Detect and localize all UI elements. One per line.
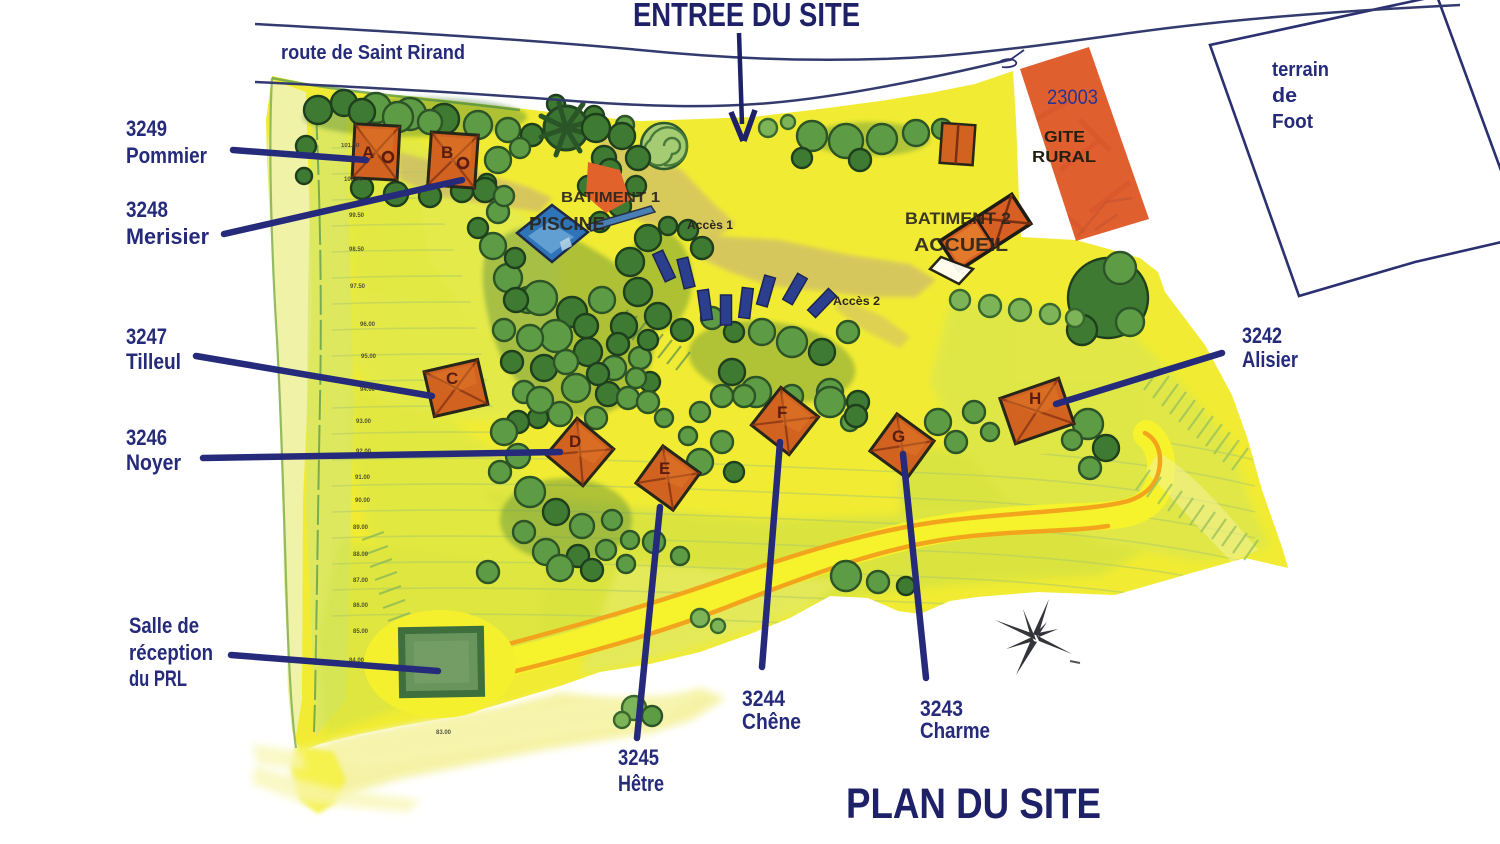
svg-text:3246: 3246	[126, 425, 167, 450]
svg-text:PLAN DU SITE: PLAN DU SITE	[846, 780, 1101, 828]
svg-text:ACCUEIL: ACCUEIL	[914, 235, 1008, 255]
svg-text:F: F	[777, 403, 787, 422]
svg-text:89.00: 89.00	[353, 525, 369, 531]
svg-text:Alisier: Alisier	[1242, 347, 1298, 372]
svg-text:Tilleul: Tilleul	[126, 349, 181, 374]
svg-text:3248: 3248	[126, 197, 168, 222]
svg-text:101.50: 101.50	[341, 143, 360, 149]
svg-text:RURAL: RURAL	[1032, 149, 1096, 166]
svg-text:Hêtre: Hêtre	[618, 771, 664, 796]
svg-text:GITE: GITE	[1044, 129, 1085, 146]
svg-text:ENTREE DU SITE: ENTREE DU SITE	[633, 0, 860, 33]
svg-text:PISCINE: PISCINE	[529, 214, 605, 234]
svg-text:BATIMENT 2: BATIMENT 2	[905, 209, 1011, 228]
svg-text:BATIMENT 1: BATIMENT 1	[561, 189, 660, 206]
svg-text:97.50: 97.50	[350, 284, 366, 290]
svg-text:85.00: 85.00	[353, 629, 369, 635]
svg-text:90.00: 90.00	[355, 498, 371, 504]
svg-text:95.00: 95.00	[361, 354, 377, 360]
svg-text:3249: 3249	[126, 116, 167, 141]
svg-text:route de Saint Rirand: route de Saint Rirand	[281, 42, 465, 64]
svg-text:Accès 2: Accès 2	[833, 294, 880, 308]
svg-text:94.00: 94.00	[360, 387, 376, 393]
svg-text:E: E	[659, 459, 670, 478]
svg-text:D: D	[569, 432, 581, 451]
svg-text:96.00: 96.00	[360, 322, 376, 328]
svg-text:Foot: Foot	[1272, 111, 1313, 133]
svg-text:B: B	[441, 143, 453, 162]
svg-text:Noyer: Noyer	[126, 450, 181, 475]
svg-text:Salle de: Salle de	[129, 613, 199, 638]
svg-text:87.00: 87.00	[353, 578, 369, 584]
svg-text:Accès 1: Accès 1	[687, 218, 733, 232]
svg-text:3245: 3245	[618, 745, 659, 770]
svg-text:Charme: Charme	[920, 718, 990, 743]
svg-text:Merisier: Merisier	[126, 224, 209, 249]
svg-text:Pommier: Pommier	[126, 143, 207, 168]
svg-text:H: H	[1029, 389, 1041, 408]
svg-text:de: de	[1272, 85, 1297, 107]
svg-text:3244: 3244	[742, 686, 786, 711]
svg-text:83.00: 83.00	[436, 730, 452, 736]
svg-text:G: G	[892, 427, 905, 446]
svg-text:93.00: 93.00	[356, 419, 372, 425]
svg-text:100.50: 100.50	[344, 177, 363, 183]
svg-text:92.00: 92.00	[356, 449, 372, 455]
svg-text:23003: 23003	[1047, 86, 1098, 109]
svg-text:84.00: 84.00	[349, 658, 365, 664]
svg-text:88.00: 88.00	[353, 552, 369, 558]
svg-text:du PRL: du PRL	[129, 666, 187, 691]
svg-text:3242: 3242	[1242, 323, 1282, 348]
svg-text:3247: 3247	[126, 324, 167, 349]
svg-text:terrain: terrain	[1272, 59, 1329, 81]
svg-text:91.00: 91.00	[355, 475, 371, 481]
svg-text:C: C	[446, 369, 458, 388]
svg-text:98.50: 98.50	[349, 247, 365, 253]
svg-text:99.50: 99.50	[349, 213, 365, 219]
svg-text:Chêne: Chêne	[742, 709, 801, 734]
svg-text:réception: réception	[129, 640, 213, 665]
svg-text:86.00: 86.00	[353, 603, 369, 609]
